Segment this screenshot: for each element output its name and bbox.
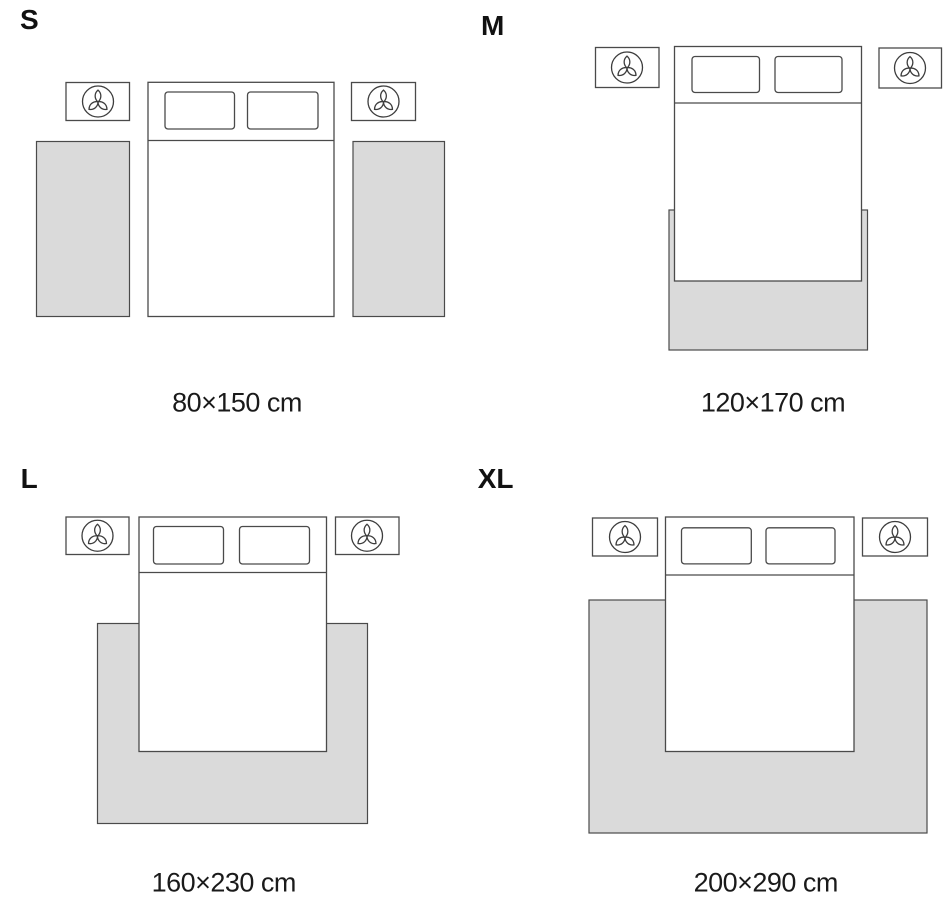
- svg-text:200×290 cm: 200×290 cm: [694, 868, 838, 898]
- svg-text:S: S: [20, 4, 39, 35]
- svg-text:XL: XL: [478, 463, 514, 494]
- svg-text:80×150 cm: 80×150 cm: [172, 388, 302, 418]
- svg-text:L: L: [21, 463, 38, 494]
- svg-text:M: M: [481, 10, 504, 41]
- svg-text:160×230 cm: 160×230 cm: [152, 868, 296, 898]
- svg-text:120×170 cm: 120×170 cm: [701, 388, 845, 418]
